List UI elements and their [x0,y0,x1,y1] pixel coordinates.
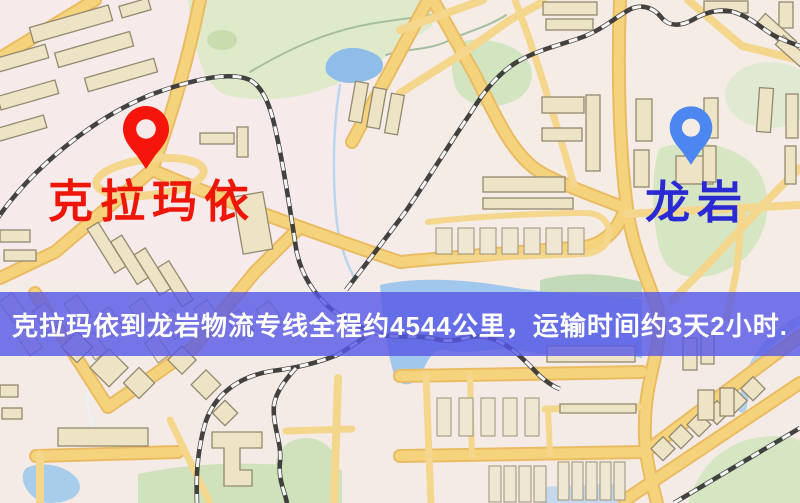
route-banner: 克拉玛依到龙岩物流专线全程约4544公里，运输时间约3天2小时. [0,292,800,356]
map-background [0,0,800,503]
destination-label: 龙岩 [617,180,777,226]
pin-shape [123,106,169,169]
origin-marker [119,104,173,172]
map-pin-icon [119,104,173,172]
origin-label: 克拉玛依 [36,179,268,225]
route-banner-text: 克拉玛依到龙岩物流专线全程约4544公里，运输时间约3天2小时. [12,306,788,343]
destination-marker [666,104,716,168]
map-pin-icon [666,104,716,168]
pin-shape [670,106,713,164]
logistics-route-map: 克拉玛依 龙岩 克拉玛依到龙岩物流专线全程约4544公里，运输时间约3天2小时. [0,0,800,503]
